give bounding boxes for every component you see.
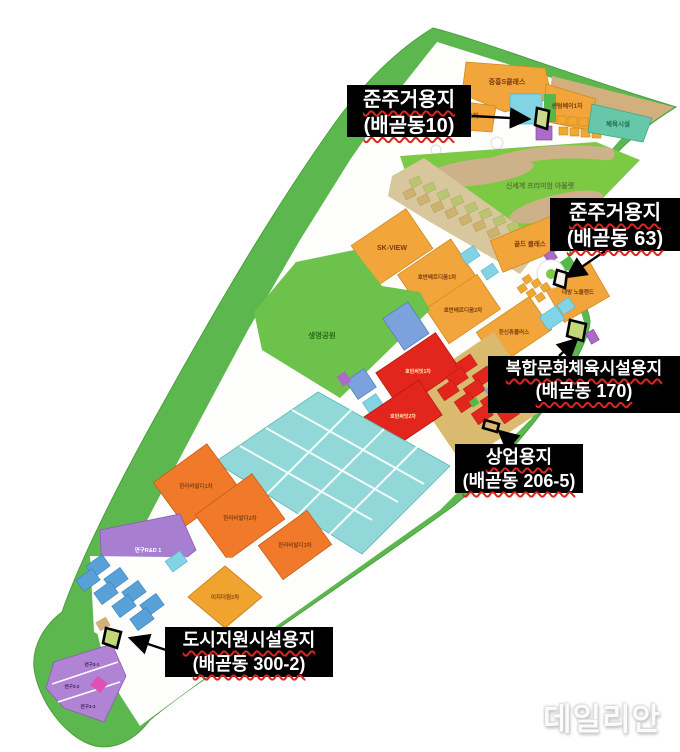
- label-yeongu32: 연구3-2: [65, 683, 80, 690]
- callout-subtitle: (배곧동 170): [492, 380, 676, 404]
- callout-subtitle: (배곧동 300-2): [169, 653, 329, 677]
- marked-parcel-63: [554, 270, 567, 288]
- callout-title: 준주거용지: [554, 200, 676, 226]
- label-yeongu31: 연구3-1: [85, 661, 100, 668]
- callout-commercial-206-5: 상업용지 (배곧동 206-5): [455, 444, 583, 493]
- callout-support-300-2: 도시지원시설용지 (배곧동 300-2): [165, 627, 333, 677]
- label-hoban1: 호반베르디움1차: [418, 273, 457, 281]
- marked-parcel-170: [567, 320, 586, 341]
- marked-parcel-10: [535, 108, 549, 129]
- label-gold: 골드 클래스: [514, 239, 546, 248]
- label-halla1: 한라비발디1차: [179, 482, 213, 490]
- label-hoban2: 호반베르디움2차: [444, 306, 483, 314]
- roundabout-top: [491, 137, 503, 149]
- label-daebang: 대방 노블랜드: [562, 288, 594, 296]
- land-use-map-page: 중흥S클래스 이지더원1차 센텀베이1차 체육시설 신세계 프리미엄 아울렛 S…: [0, 0, 680, 752]
- label-hanshin: 한신휴플러스: [499, 328, 529, 336]
- label-centumbay: 센텀베이1차: [552, 102, 583, 110]
- label-halla2: 한라비발디2차: [223, 514, 257, 522]
- label-yeongu33: 연구3-3: [81, 703, 96, 710]
- label-lifepark: 생명공원: [308, 330, 336, 340]
- callout-subtitle: (배곧동 206-5): [459, 470, 579, 494]
- watermark-dailian: 데일리안: [543, 694, 661, 739]
- callout-title: 도시지원시설용지: [169, 629, 329, 653]
- callout-title: 복합문화체육시설용지: [492, 358, 676, 380]
- marked-parcel-300-2: [103, 628, 121, 648]
- label-rnd: 연구R&D 1: [135, 546, 162, 554]
- label-summit1: 호반써밋1차: [405, 368, 431, 375]
- label-outlet: 신세계 프리미엄 아울렛: [506, 181, 575, 190]
- label-skview: SK-VIEW: [377, 245, 407, 252]
- label-summit2: 호반써밋2차: [390, 413, 416, 420]
- callout-junjugeo-10: 준주거용지 (배곧동10): [347, 85, 471, 137]
- label-halla3: 한라비발디3차: [278, 541, 312, 549]
- callout-title: 준주거용지: [351, 87, 467, 113]
- callout-subtitle: (배곧동10): [351, 113, 467, 139]
- label-sports: 체육시설: [606, 119, 630, 128]
- callout-junjugeo-63: 준주거용지 (배곧동 63): [550, 198, 680, 251]
- callout-sports-170: 복합문화체육시설용지 (배곧동 170): [488, 356, 680, 413]
- callout-subtitle: (배곧동 63): [554, 226, 676, 252]
- label-joongheung: 중흥S클래스: [489, 77, 526, 86]
- label-ezone2: 이지더원2차: [211, 593, 240, 601]
- callout-title: 상업용지: [459, 446, 579, 470]
